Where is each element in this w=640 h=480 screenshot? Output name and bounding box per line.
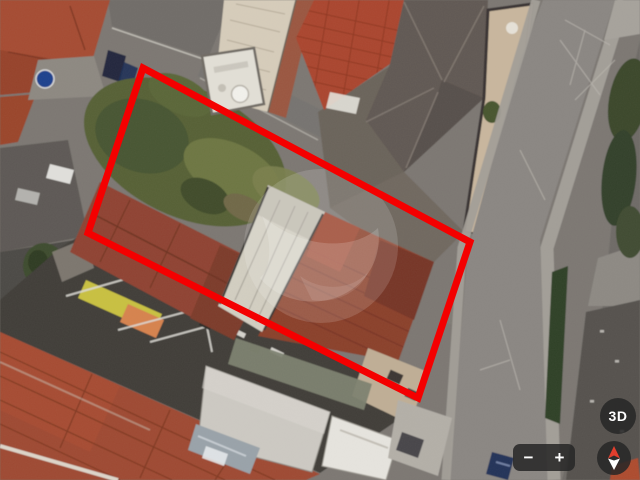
compass-button[interactable] bbox=[597, 441, 631, 475]
tilt-3d-button[interactable]: 3D bbox=[600, 398, 636, 434]
map-viewport[interactable]: 3D − + bbox=[0, 0, 640, 480]
tilt-3d-label: 3D bbox=[609, 408, 628, 424]
zoom-control: − + bbox=[513, 444, 575, 471]
satellite-imagery[interactable] bbox=[0, 0, 640, 480]
compass-needle-icon bbox=[597, 441, 631, 475]
zoom-in-button[interactable]: + bbox=[544, 444, 575, 471]
zoom-out-button[interactable]: − bbox=[513, 444, 544, 471]
